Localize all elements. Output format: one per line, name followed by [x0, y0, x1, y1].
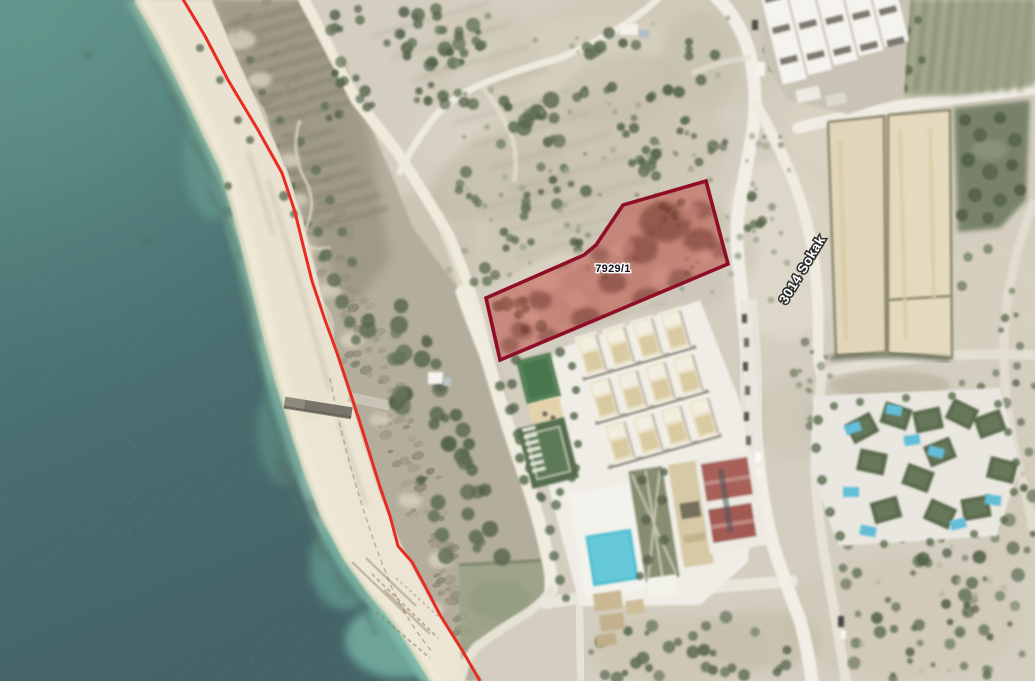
svg-text:7929/1: 7929/1 — [595, 263, 630, 275]
